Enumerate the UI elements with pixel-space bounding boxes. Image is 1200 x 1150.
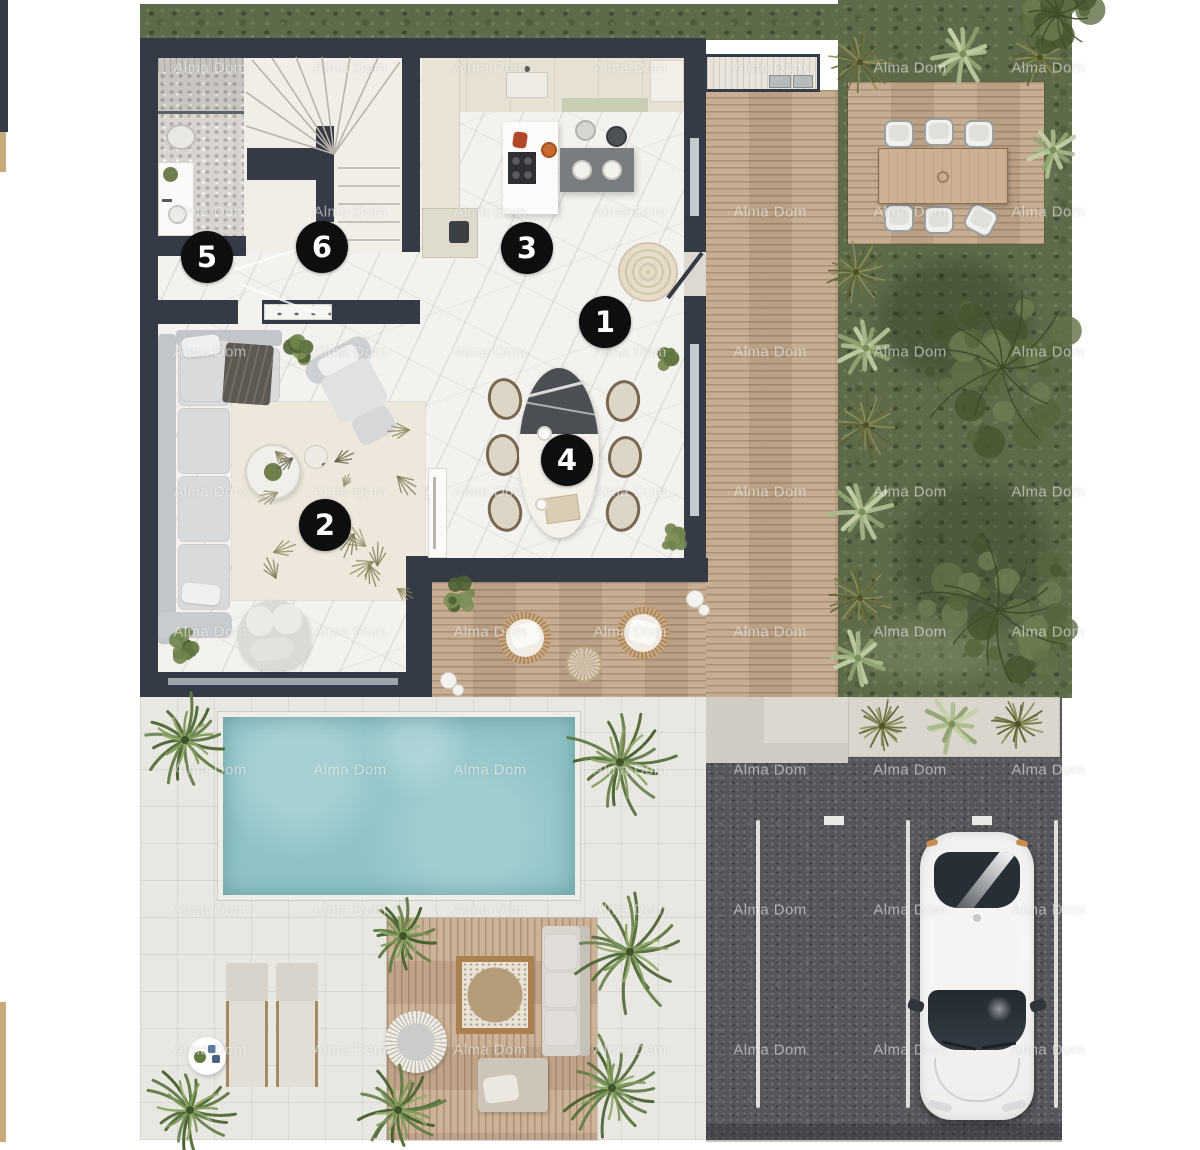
room-marker-3: 3 [501, 222, 553, 274]
parking-tick [972, 816, 992, 825]
room-marker-5: 5 [181, 231, 233, 283]
car-headlight [1001, 1099, 1026, 1113]
room-marker-6: 6 [296, 221, 348, 273]
parking-tick [824, 816, 844, 825]
car-hood-seam [934, 1058, 1020, 1102]
car [920, 832, 1034, 1120]
parking-line [756, 820, 760, 1108]
room-marker-1: 1 [579, 296, 631, 348]
floor-plan-image: Alma DomAlma DomAlma DomAlma DomAlma Dom… [0, 0, 1200, 1150]
room-marker-4: 4 [541, 434, 593, 486]
car-taillight [925, 839, 938, 848]
car-headlight [927, 1099, 952, 1113]
room-marker-2: 2 [299, 499, 351, 551]
car-rear-glass [934, 852, 1020, 908]
car-antenna [973, 914, 981, 922]
parking-line [1054, 820, 1058, 1108]
parking-line [906, 820, 910, 1108]
